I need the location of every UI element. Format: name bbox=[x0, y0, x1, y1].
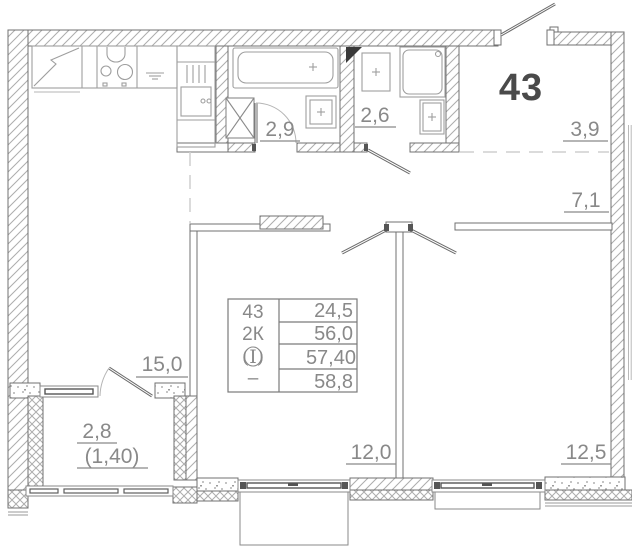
shower-tray-icon bbox=[400, 47, 445, 97]
bedrooms-partition bbox=[396, 232, 403, 478]
wc-sink-icon bbox=[420, 100, 444, 134]
wc-bottom-wall-right bbox=[410, 143, 459, 152]
lintel-block bbox=[260, 216, 323, 229]
balcony-wall-left bbox=[28, 396, 43, 490]
room-area-bedroom-right: 12,5 bbox=[566, 441, 607, 464]
corner-cabinet-icon bbox=[34, 48, 79, 86]
bathtub-icon bbox=[233, 48, 338, 88]
stamp-area-no-balcony: 56,0 bbox=[314, 323, 353, 345]
top-wall bbox=[8, 30, 498, 46]
bedroom-right-window bbox=[432, 480, 545, 492]
room-area-hallway: 7,1 bbox=[571, 189, 600, 212]
pier-balcony-bedroom bbox=[197, 478, 238, 491]
balcony-corner-right bbox=[173, 487, 197, 503]
bedroom-left-door bbox=[342, 224, 389, 253]
bedroom-right-basket bbox=[435, 492, 540, 509]
bedrooms-top-wall-right bbox=[455, 223, 612, 230]
entry-jamb-right bbox=[547, 30, 554, 45]
room-area-entry-hall: 3,9 bbox=[570, 118, 599, 141]
wc-right-wall bbox=[446, 46, 459, 152]
vent-shaft-icon bbox=[226, 98, 254, 138]
room-area-bathroom: 2,9 bbox=[265, 118, 294, 141]
room-area-balcony: 2,8 bbox=[82, 420, 111, 443]
bathroom-bottom-wall-left bbox=[228, 143, 255, 152]
zone-dashed-lines bbox=[190, 152, 609, 223]
left-wall bbox=[8, 30, 28, 490]
balcony-wall-right-outer bbox=[186, 396, 197, 480]
balcony-wall-right bbox=[174, 396, 186, 480]
wc-door bbox=[364, 144, 410, 173]
stamp-table: 43 2К (I) – 24,5 56,0 57,40 58,8 bbox=[228, 299, 357, 393]
room-area-balcony-reduced: (1,40) bbox=[85, 445, 140, 468]
bedroom-left-window bbox=[238, 480, 350, 492]
living-room-window bbox=[40, 386, 98, 397]
stamp-area-with-coef: 57,40 bbox=[306, 347, 356, 369]
entry-jamb-left bbox=[494, 30, 501, 45]
stove-burner-small bbox=[101, 66, 111, 76]
stove-burner-large bbox=[118, 65, 133, 80]
bedroom-right-door bbox=[408, 224, 456, 253]
tall-cabinet-fridge bbox=[177, 46, 215, 147]
hood-icon bbox=[146, 73, 164, 79]
sill-lines-right bbox=[545, 503, 632, 506]
right-wall bbox=[611, 32, 624, 478]
neighbor-wall-line bbox=[629, 125, 632, 380]
apartment-number: 43 bbox=[499, 67, 543, 109]
bathroom-bottom-wall-right bbox=[297, 143, 340, 152]
room-area-bedroom-left: 12,0 bbox=[351, 441, 392, 464]
pier-bottom-right bbox=[545, 477, 625, 490]
bedroom-left-basket bbox=[240, 492, 348, 545]
stamp-category-symbol: (I) bbox=[242, 346, 264, 368]
stamp-apartment-number: 43 bbox=[242, 302, 263, 323]
stamp-total-area: 58,8 bbox=[314, 371, 353, 393]
stamp-living-area: 24,5 bbox=[314, 300, 353, 322]
kitchen-fixtures bbox=[32, 46, 215, 147]
stamp-dash: – bbox=[248, 368, 259, 389]
stamp-type: 2К bbox=[242, 324, 264, 345]
living-bedroom-partition bbox=[190, 231, 197, 396]
sink-icon bbox=[107, 47, 125, 62]
room-area-kitchen-living: 15,0 bbox=[142, 353, 183, 376]
balcony-glazing bbox=[26, 486, 173, 496]
balcony-corner-left bbox=[8, 490, 28, 508]
room-area-wc: 2,6 bbox=[360, 104, 389, 127]
bathroom-sink-icon bbox=[306, 96, 336, 128]
washing-machine-icon bbox=[362, 53, 390, 91]
pier-between-bedrooms bbox=[350, 478, 433, 490]
floor-plan: 2,9 2,6 3,9 7,1 15,0 2,8 (1,40) 12,0 12,… bbox=[0, 0, 632, 548]
floor-plan-drawing: 2,9 2,6 3,9 7,1 15,0 2,8 (1,40) 12,0 12,… bbox=[0, 0, 632, 548]
balcony-sill-stubs bbox=[8, 512, 28, 515]
